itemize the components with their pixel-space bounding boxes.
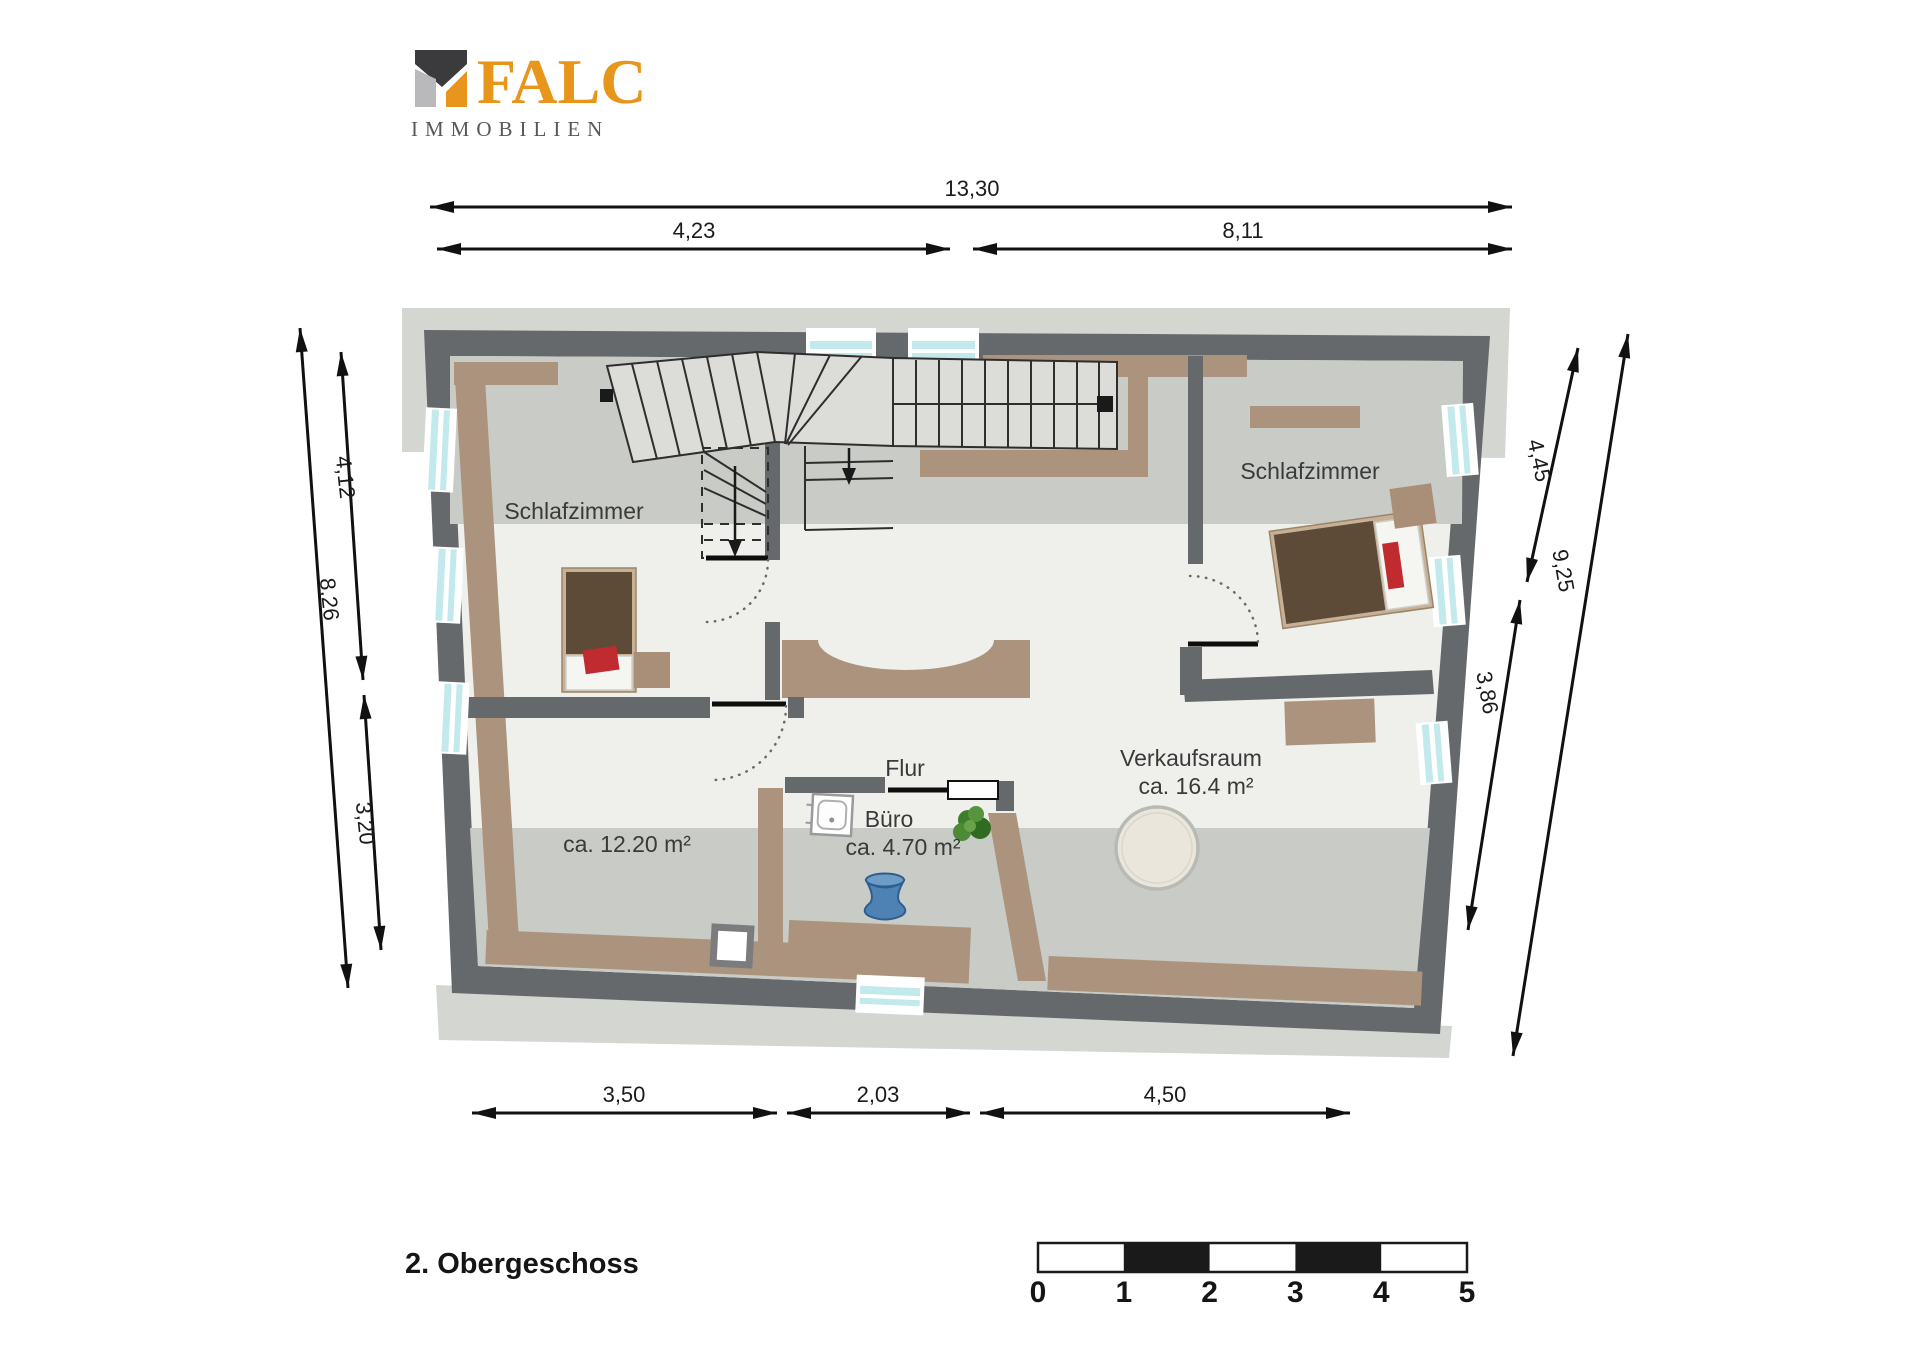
room-label-sales: Verkaufsraum [1120,745,1262,771]
scale-bar-seg-1 [1124,1243,1210,1272]
lining-stair-side [1128,377,1148,450]
wall-hall-left-lower [765,622,780,700]
scale-bar-frame [1038,1243,1467,1272]
door-leaf-salesroom [948,781,998,799]
brand-text: FALC [477,46,646,117]
scale-tick-4: 4 [1373,1276,1390,1309]
floor-label: 2. Obergeschoss [405,1248,639,1280]
falc-logo: FALC IMMOBILIEN [411,46,646,141]
lining-under-stair [920,450,1148,477]
stair-newel [1097,396,1113,412]
dimension-top-right: 8,11 [1222,218,1263,243]
scale-bar-seg-3 [1295,1243,1381,1272]
room-label-bedroom-left: Schlafzimmer [504,498,644,524]
dimension-right-lower-line [1468,600,1520,930]
floorplan-canvas: FALC IMMOBILIEN [0,0,1920,1363]
chimney [713,927,751,965]
dimension-bottom-middle: 2,03 [857,1082,900,1107]
scale-tick-2: 2 [1201,1276,1218,1309]
room-area-bedroom-left: ca. 12.20 m² [563,831,691,857]
window-right-1 [1441,403,1479,477]
lining-top-left [454,362,558,385]
office-desk [787,920,971,984]
dimension-top-total: 13,30 [944,176,999,201]
sink [805,794,853,836]
room-label-hall: Flur [885,755,925,781]
pillow-left [582,646,619,674]
scale-bar: 0 1 2 3 4 5 [1030,1243,1476,1309]
window-bottom [855,975,925,1016]
scale-tick-3: 3 [1287,1276,1304,1309]
stair-newel-2 [600,389,613,402]
dimension-left-upper-line [341,352,363,680]
dimension-left-upper: 4,12 [331,455,360,500]
lining-office-left [758,788,783,970]
logo-mark [415,50,467,107]
room-label-bedroom-right: Schlafzimmer [1240,458,1380,484]
dimension-left-total-line [300,328,348,988]
nightstand-left [634,652,670,688]
scale-tick-0: 0 [1030,1276,1047,1309]
bed-right [1269,510,1433,628]
dimension-right-upper: 4,45 [1523,437,1556,484]
scale-tick-1: 1 [1115,1276,1132,1309]
floorplan-page: FALC IMMOBILIEN [0,0,1920,1363]
window-left-2 [429,546,464,623]
hall-desk-notch [818,610,994,670]
dimension-bottom-right: 4,50 [1144,1082,1187,1107]
round-column [1116,807,1198,889]
nightstand-right [1389,483,1436,528]
building [422,328,1490,1034]
room-area-office: ca. 4.70 m² [845,834,960,860]
dimension-bottom-left: 3,50 [603,1082,646,1107]
window-right-2 [1428,555,1465,627]
scale-tick-5: 5 [1459,1276,1476,1309]
window-left-3 [435,681,469,754]
dimension-right-total: 9,25 [1547,547,1579,594]
window-right-3 [1416,721,1453,785]
wall-bedroom-left-bottom [453,697,710,718]
room-area-sales: ca. 16.4 m² [1138,773,1253,799]
sideboard-right [1284,698,1375,745]
window-left-1 [422,407,457,492]
dimension-right-lower: 3,86 [1471,669,1503,716]
dimension-top-left: 4,23 [673,218,716,243]
logo-subtitle: IMMOBILIEN [411,117,609,141]
dimension-left-total: 8,26 [315,577,344,622]
wall-salesroom-left [1188,356,1203,564]
wall-office-top [785,777,885,793]
lining-bedroom-right [1250,406,1360,428]
dimension-left-lower: 3,20 [351,801,380,846]
room-label-office: Büro [865,806,914,832]
wall-post-a [788,697,804,718]
